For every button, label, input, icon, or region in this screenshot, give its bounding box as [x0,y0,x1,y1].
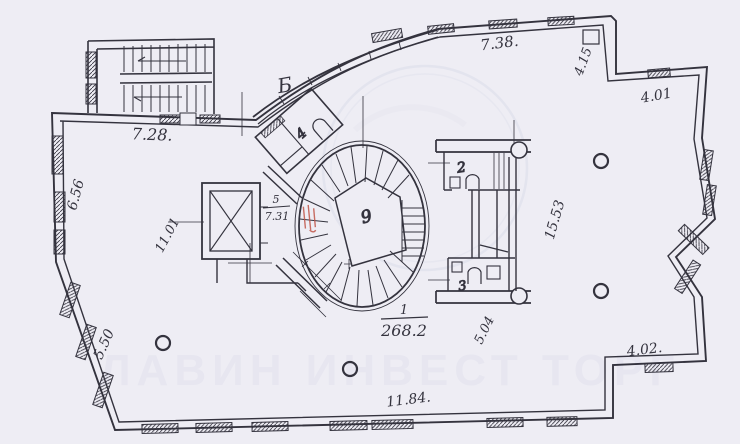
window [252,422,288,432]
window [645,363,673,373]
room1-number: 1 [400,303,408,318]
door-opening [180,113,196,125]
dim-top-left-wall: 7.28. [132,124,173,144]
floor-plan-scan: ЛАВИН ИНВЕСТ ТОРГ [0,0,740,444]
window [54,192,65,222]
window [196,423,232,433]
room5-area: 7.31 [265,210,290,223]
window [372,419,413,429]
column [511,288,527,304]
window [200,115,220,123]
floor-plan-drawing: ЛАВИН ИНВЕСТ ТОРГ [0,0,740,444]
window [648,68,671,78]
window [487,418,523,428]
watermark-text: ЛАВИН ИНВЕСТ ТОРГ [100,346,681,395]
window [142,424,178,434]
column [511,142,527,158]
wall-notch [583,30,599,44]
room5-number: 5 [273,193,280,206]
window [548,16,574,25]
window [330,421,367,431]
window [54,230,65,254]
window [547,417,577,427]
room1-area: 268.2 [380,321,427,340]
window [489,19,517,29]
window [52,136,63,174]
